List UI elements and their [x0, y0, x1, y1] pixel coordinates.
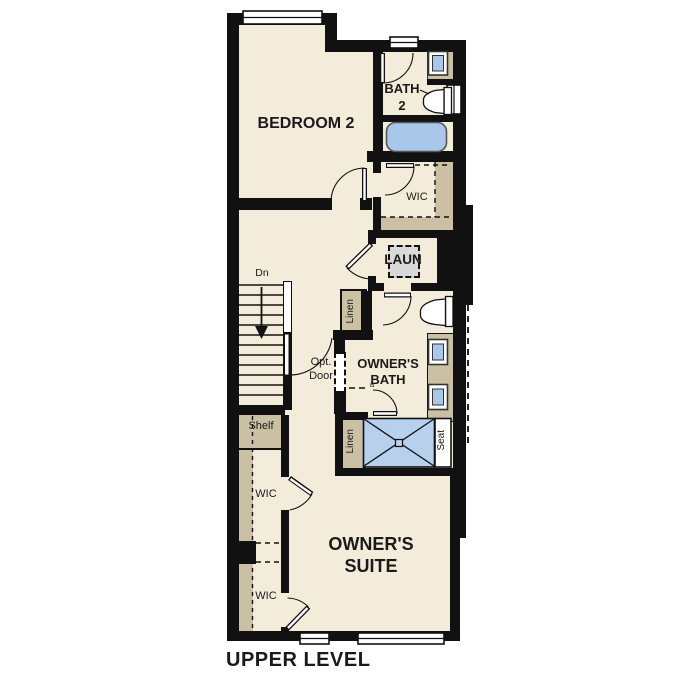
label-shower-linen: Linen: [346, 416, 357, 466]
label-opt-door-line1: Opt.: [300, 357, 342, 369]
room-label-owners-bath-line2: BATH: [348, 373, 428, 387]
sink-bath2-icon: [429, 52, 448, 76]
label-wic-closet-2: WIC: [245, 591, 287, 603]
label-hall-linen: Linen: [346, 286, 357, 336]
label-shelf: Shelf: [240, 421, 282, 433]
label-wic-closet-1: WIC: [245, 489, 287, 501]
label-opt-door-line2: Door: [300, 371, 342, 383]
label-marker-a: a: [367, 381, 377, 389]
toilet-owners-icon: [421, 297, 454, 327]
room-label-bath2-line2: 2: [380, 99, 424, 113]
shower-icon: [364, 419, 435, 468]
room-label-owners-bath-line1: OWNER'S: [348, 357, 428, 371]
room-label-bedroom2: BEDROOM 2: [236, 116, 376, 133]
room-label-owners-suite-line2: SUITE: [296, 557, 446, 576]
bathtub-icon: [387, 123, 447, 152]
room-label-bath2-line1: BATH: [380, 82, 424, 96]
label-stairs-dn: Dn: [248, 268, 276, 279]
room-label-laundry: LAUN: [378, 253, 428, 267]
sink-owners-1-icon: [429, 340, 448, 365]
floor-plan: BEDROOM 2 BATH 2 WIC LAUN Dn Linen OWNER…: [0, 0, 687, 687]
label-shower-seat: Seat: [437, 415, 448, 465]
fixtures-overlay: [0, 0, 687, 687]
toilet-bath2-icon: [424, 88, 452, 115]
sink-owners-2-icon: [429, 385, 448, 410]
page-title: UPPER LEVEL: [226, 650, 368, 671]
room-label-wic-upper: WIC: [395, 192, 439, 204]
room-label-owners-suite-line1: OWNER'S: [296, 535, 446, 554]
